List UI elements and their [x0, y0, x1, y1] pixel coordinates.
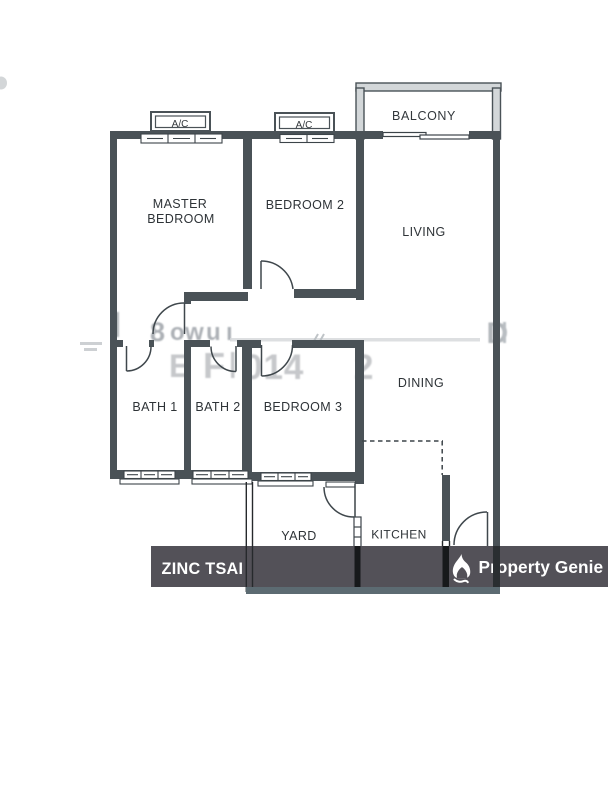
svg-text:BEDROOM 2: BEDROOM 2	[266, 198, 345, 212]
svg-text:BATH 2: BATH 2	[195, 400, 240, 414]
svg-text:ı: ı	[226, 319, 233, 346]
svg-text:o: o	[170, 319, 185, 346]
svg-text:KITCHEN: KITCHEN	[371, 528, 426, 542]
svg-text:ZINC TSAI: ZINC TSAI	[162, 560, 244, 578]
svg-text:BATH 1: BATH 1	[132, 400, 177, 414]
svg-text:LIVING: LIVING	[402, 225, 445, 239]
svg-text:YARD: YARD	[281, 529, 316, 543]
svg-text:014: 014	[243, 348, 304, 387]
svg-text:MASTER: MASTER	[153, 197, 208, 211]
svg-text:BEDROOM: BEDROOM	[147, 212, 214, 226]
svg-text:DINING: DINING	[398, 376, 444, 390]
svg-text:BALCONY: BALCONY	[392, 109, 456, 123]
svg-text:A/C: A/C	[296, 120, 313, 131]
svg-text:A/C: A/C	[172, 119, 189, 130]
svg-text:BEDROOM 3: BEDROOM 3	[264, 400, 343, 414]
svg-text:F: F	[203, 345, 225, 386]
